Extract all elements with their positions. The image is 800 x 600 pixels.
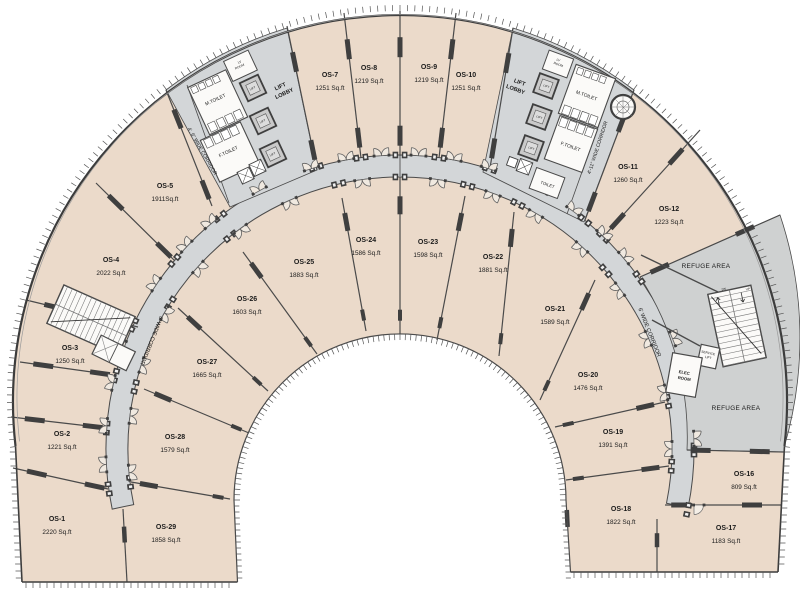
svg-text:2220 Sq.ft: 2220 Sq.ft bbox=[42, 529, 71, 536]
svg-text:1883 Sq.ft: 1883 Sq.ft bbox=[289, 272, 318, 279]
svg-text:809 Sq.ft: 809 Sq.ft bbox=[731, 484, 757, 491]
svg-text:OS-3: OS-3 bbox=[62, 345, 78, 352]
svg-text:OS-28: OS-28 bbox=[165, 434, 185, 441]
svg-text:1586 Sq.ft: 1586 Sq.ft bbox=[351, 250, 380, 257]
svg-text:OS-4: OS-4 bbox=[103, 257, 119, 264]
svg-text:1665 Sq.ft: 1665 Sq.ft bbox=[192, 372, 221, 379]
svg-text:REFUGE AREA: REFUGE AREA bbox=[712, 405, 761, 412]
svg-text:1589 Sq.ft: 1589 Sq.ft bbox=[540, 319, 569, 326]
svg-text:OS-29: OS-29 bbox=[156, 524, 176, 531]
svg-text:1250 Sq.ft: 1250 Sq.ft bbox=[55, 358, 84, 365]
svg-text:OS-11: OS-11 bbox=[618, 164, 638, 171]
svg-text:1221 Sq.ft: 1221 Sq.ft bbox=[47, 444, 76, 451]
svg-text:OS-5: OS-5 bbox=[157, 183, 173, 190]
svg-text:OS-9: OS-9 bbox=[421, 64, 437, 71]
svg-text:OS-27: OS-27 bbox=[197, 359, 217, 366]
svg-text:1251 Sq.ft: 1251 Sq.ft bbox=[451, 85, 480, 92]
svg-text:REFUGE AREA: REFUGE AREA bbox=[682, 263, 731, 270]
svg-text:OS-23: OS-23 bbox=[418, 239, 438, 246]
svg-text:OS-16: OS-16 bbox=[734, 471, 754, 478]
svg-text:1881 Sq.ft: 1881 Sq.ft bbox=[478, 267, 507, 274]
svg-text:OS-2: OS-2 bbox=[54, 431, 70, 438]
svg-text:OS-26: OS-26 bbox=[237, 296, 257, 303]
svg-text:1858 Sq.ft: 1858 Sq.ft bbox=[151, 537, 180, 544]
svg-text:1603 Sq.ft: 1603 Sq.ft bbox=[232, 309, 261, 316]
svg-text:OS-17: OS-17 bbox=[716, 525, 736, 532]
svg-text:1579 Sq.ft: 1579 Sq.ft bbox=[160, 447, 189, 454]
svg-text:OS-18: OS-18 bbox=[611, 506, 631, 513]
svg-text:OS-25: OS-25 bbox=[294, 259, 314, 266]
svg-text:OS-8: OS-8 bbox=[361, 65, 377, 72]
svg-text:UP: UP bbox=[745, 287, 750, 292]
svg-text:OS-1: OS-1 bbox=[49, 516, 65, 523]
svg-text:1260 Sq.ft: 1260 Sq.ft bbox=[613, 177, 642, 184]
svg-text:1219 Sq.ft: 1219 Sq.ft bbox=[354, 78, 383, 85]
svg-text:1391 Sq.ft: 1391 Sq.ft bbox=[598, 442, 627, 449]
svg-text:OS-20: OS-20 bbox=[578, 372, 598, 379]
svg-text:OS-12: OS-12 bbox=[659, 206, 679, 213]
svg-text:1911Sq.ft: 1911Sq.ft bbox=[152, 196, 179, 203]
svg-text:OS-21: OS-21 bbox=[545, 306, 565, 313]
svg-text:OS-10: OS-10 bbox=[456, 72, 476, 79]
svg-text:1476 Sq.ft: 1476 Sq.ft bbox=[573, 385, 602, 392]
svg-text:OS-22: OS-22 bbox=[483, 254, 503, 261]
svg-text:1251 Sq.ft: 1251 Sq.ft bbox=[315, 85, 344, 92]
svg-text:1223 Sq.ft: 1223 Sq.ft bbox=[654, 219, 683, 226]
svg-text:OS-19: OS-19 bbox=[603, 429, 623, 436]
svg-text:1598 Sq.ft: 1598 Sq.ft bbox=[413, 252, 442, 259]
svg-text:1219 Sq.ft: 1219 Sq.ft bbox=[414, 77, 443, 84]
svg-text:OS-24: OS-24 bbox=[356, 237, 376, 244]
svg-text:1183 Sq.ft: 1183 Sq.ft bbox=[712, 538, 741, 545]
svg-text:2022 Sq.ft: 2022 Sq.ft bbox=[96, 270, 125, 277]
svg-text:OS-7: OS-7 bbox=[322, 72, 338, 79]
svg-text:1822 Sq.ft: 1822 Sq.ft bbox=[606, 519, 635, 526]
